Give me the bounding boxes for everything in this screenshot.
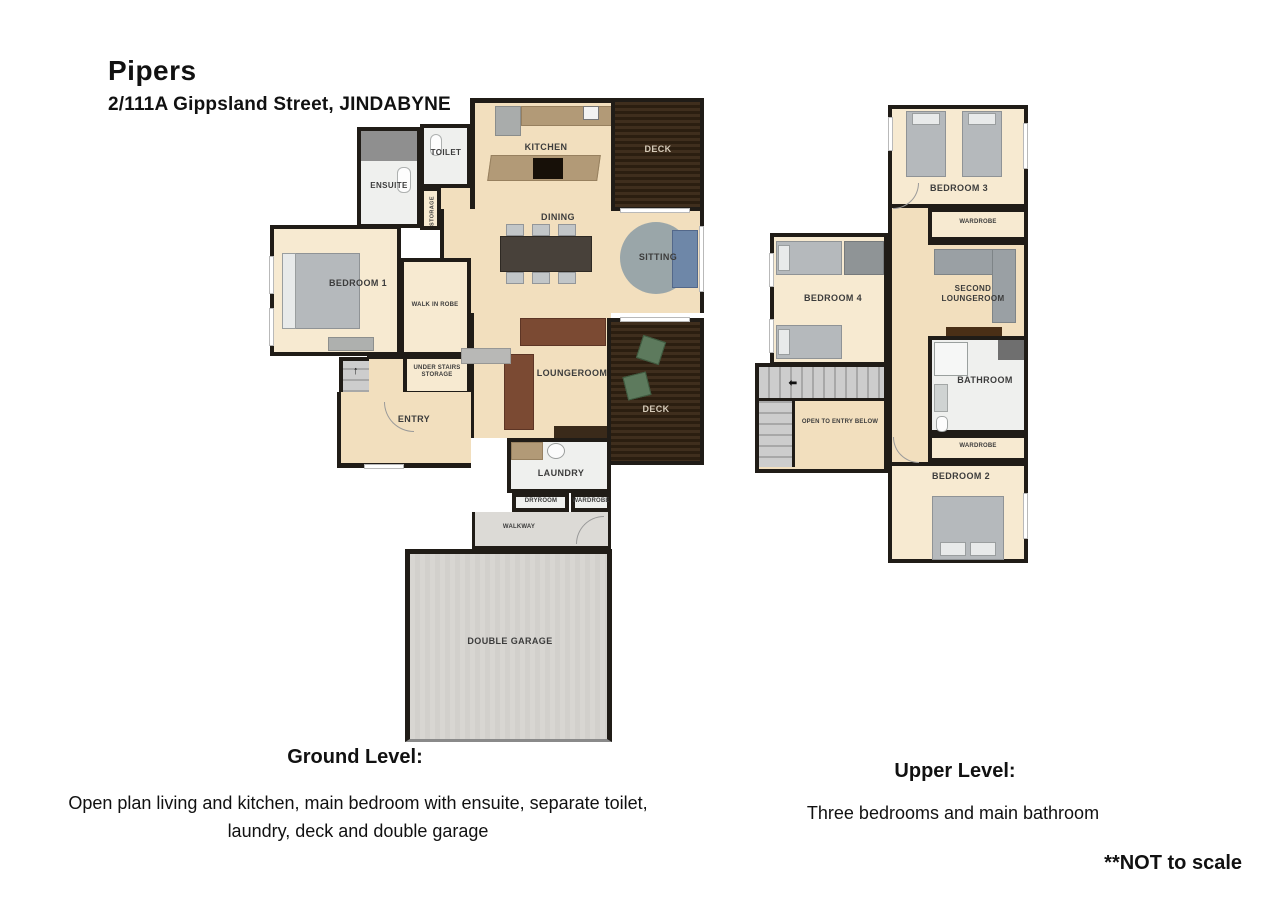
dining-chair-icon	[532, 272, 550, 284]
window-marker	[1023, 493, 1028, 539]
toilet-fixture-icon	[936, 416, 948, 432]
dining-chair-icon	[558, 272, 576, 284]
ground-floor-plan: KITCHEN DECK DINING SITTING LOUNGEROOM D…	[268, 96, 708, 744]
second-loungeroom-label: SECOND LOUNGEROOM	[933, 285, 1013, 303]
sitting-label: SITTING	[626, 252, 690, 264]
laundry	[507, 438, 611, 493]
bath-cabinet-icon	[998, 340, 1024, 360]
window-marker	[1023, 123, 1028, 169]
bedroom1-label: BEDROOM 1	[320, 278, 396, 290]
wardrobe-ground-label: WARDROBE	[573, 498, 609, 506]
pillow-icon	[940, 542, 966, 556]
loungeroom-label: LOUNGEROOM	[530, 368, 614, 380]
pillow-icon	[912, 113, 940, 125]
dining-chair-icon	[506, 272, 524, 284]
upper-level-description: Three bedrooms and main bathroom	[728, 800, 1178, 828]
pillow-icon	[778, 329, 790, 355]
window-marker	[769, 253, 774, 287]
bedroom4-label: BEDROOM 4	[793, 293, 873, 305]
window-marker	[769, 319, 774, 353]
sink-icon	[547, 443, 565, 459]
bedroom2-label: BEDROOM 2	[921, 471, 1001, 483]
bathroom-label: BATHROOM	[949, 375, 1021, 387]
wardrobe-upper-top-label: WARDROBE	[945, 219, 1011, 227]
shower-icon	[361, 131, 417, 161]
ground-level-description: Open plan living and kitchen, main bedro…	[58, 790, 658, 846]
window-marker	[269, 256, 274, 294]
ground-level-heading: Ground Level:	[130, 746, 580, 769]
stairs-upper: ⬅	[759, 367, 884, 401]
cabinet-icon	[461, 348, 511, 364]
pillow-icon	[968, 113, 996, 125]
bedroom3-label: BEDROOM 3	[919, 183, 999, 195]
deck-bottom-label: DECK	[626, 404, 686, 416]
wardrobe-upper-bottom-label: WARDROBE	[945, 443, 1011, 451]
walkway-label: WALKWAY	[494, 524, 544, 532]
garage-label: DOUBLE GARAGE	[450, 636, 570, 648]
floorplan-page: Pipers 2/111A Gippsland Street, JINDABYN…	[0, 0, 1280, 905]
brown-sofa-icon	[504, 354, 534, 430]
walk-in-robe-label: WALK IN ROBE	[410, 298, 460, 314]
open-to-entry-label: OPEN TO ENTRY BELOW	[797, 419, 883, 427]
pillow-icon	[778, 245, 790, 271]
upper-level-heading: Upper Level:	[780, 760, 1130, 783]
under-stairs-label: UNDER STAIRS STORAGE	[409, 364, 465, 380]
toilet-label: TOILET	[422, 148, 470, 158]
brown-sofa-icon	[520, 318, 606, 346]
bedroom1	[270, 225, 401, 356]
dryroom-label: DRYROOM	[516, 498, 566, 506]
storage: STORAGE	[420, 187, 441, 230]
ensuite-label: ENSUITE	[360, 181, 418, 191]
vanity-icon	[934, 384, 948, 412]
window-marker	[888, 117, 893, 151]
fridge-icon	[495, 106, 521, 136]
deck-chair-icon	[636, 335, 666, 365]
cooktop-icon	[533, 158, 563, 179]
storage-label: STORAGE	[427, 193, 439, 229]
dining-table-icon	[500, 236, 592, 272]
stairs-up-arrow-icon: ↑	[349, 365, 363, 379]
stairs-left-arrow-icon: ⬅	[785, 377, 801, 391]
ensuite	[357, 127, 421, 228]
pillow-icon	[970, 542, 996, 556]
not-to-scale-note: **NOT to scale	[990, 852, 1242, 875]
wardrobe-unit-icon	[844, 241, 884, 275]
laundry-label: LAUNDRY	[526, 468, 596, 480]
window-marker	[699, 226, 704, 292]
dining-chair-icon	[506, 224, 524, 236]
deck-top-label: DECK	[628, 144, 688, 156]
dining-label: DINING	[523, 212, 593, 224]
tv-unit-icon	[554, 426, 612, 438]
stove-icon	[583, 106, 599, 120]
shower-icon	[934, 342, 968, 376]
dining-chair-icon	[532, 224, 550, 236]
laundry-bench-icon	[511, 442, 543, 460]
deck-bottom	[607, 318, 704, 465]
kitchen-counter-icon	[521, 106, 613, 126]
window-marker	[269, 308, 274, 346]
kitchen-label: KITCHEN	[506, 142, 586, 154]
dining-chair-icon	[558, 224, 576, 236]
deck-chair-icon	[622, 371, 651, 400]
window-marker	[364, 464, 404, 469]
upper-floor-plan: BEDROOM 3 WARDROBE SECOND LOUNGEROOM BAT…	[753, 103, 1031, 563]
stairs-upper-turn	[759, 401, 795, 467]
open-to-entry: ⬅	[755, 363, 888, 473]
window-marker	[620, 208, 690, 213]
window-marker	[620, 317, 690, 322]
entry-patch	[367, 355, 407, 395]
pillow-icon	[282, 253, 296, 329]
page-title: Pipers	[108, 55, 197, 87]
upper-hallway	[888, 208, 932, 462]
bench-icon	[328, 337, 374, 351]
